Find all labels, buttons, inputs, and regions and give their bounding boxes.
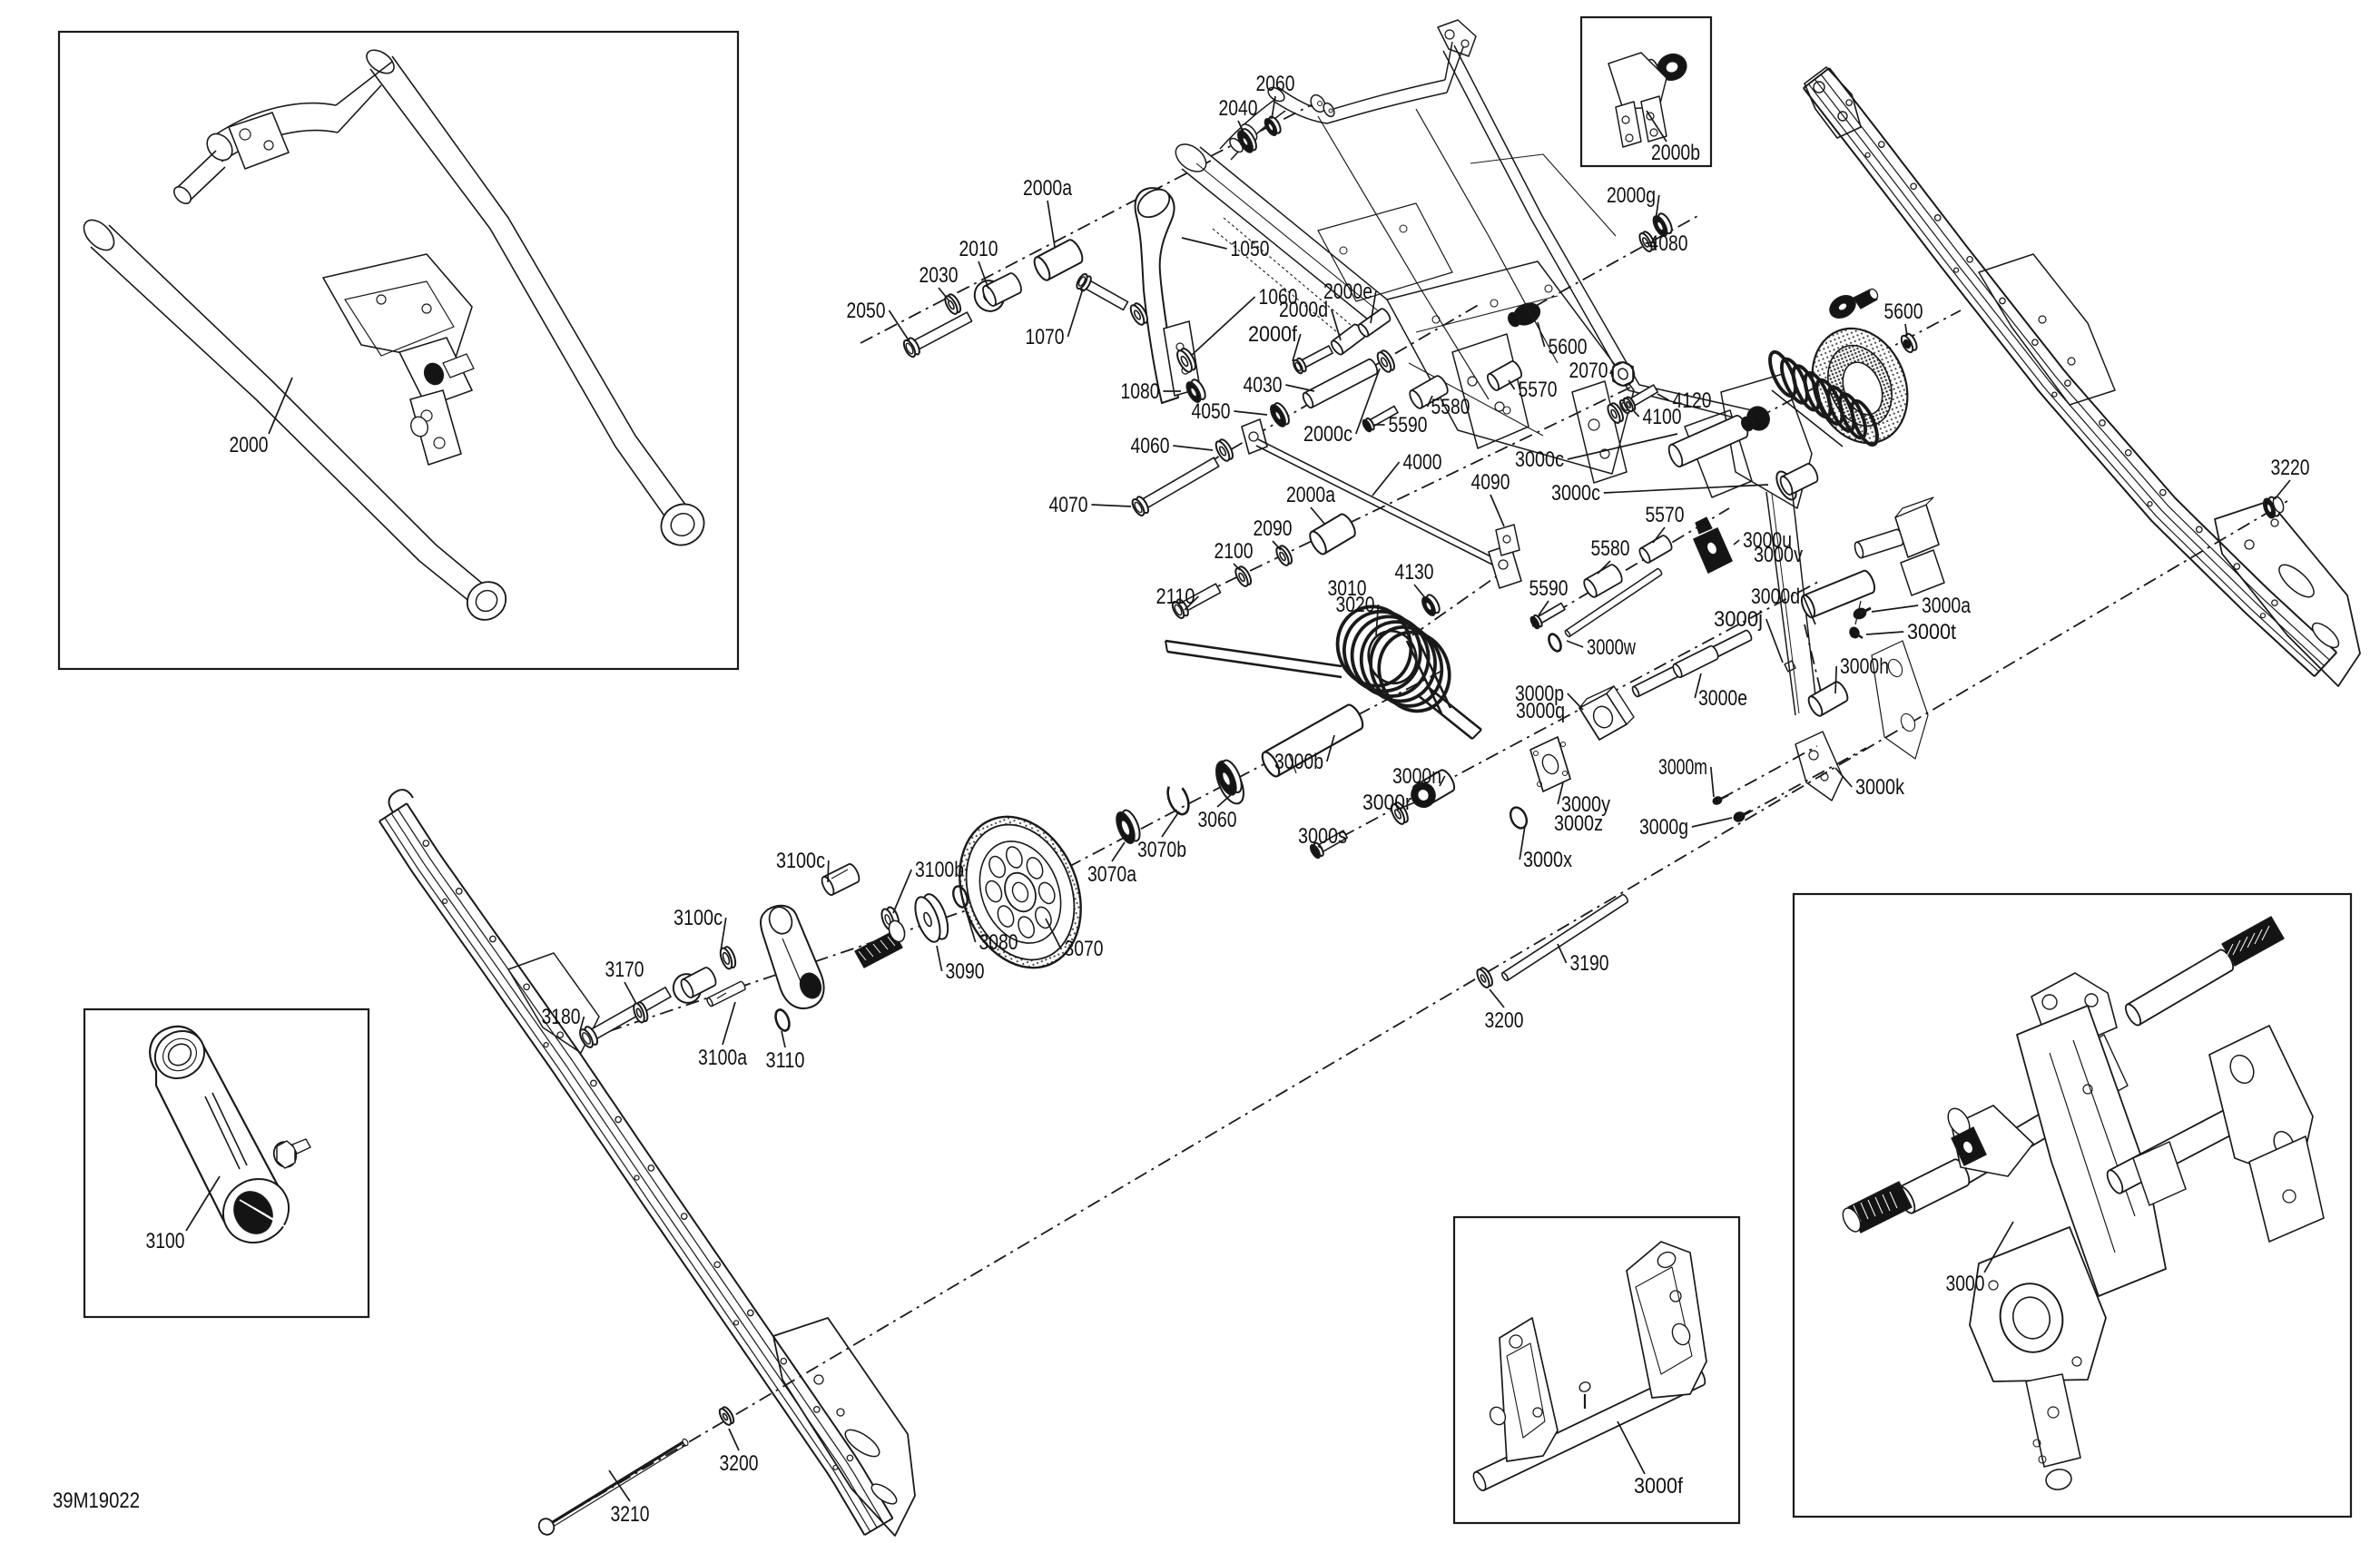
svg-text:3020: 3020 (1336, 593, 1375, 617)
svg-text:5580: 5580 (1431, 395, 1470, 419)
svg-text:5570: 5570 (1519, 378, 1558, 402)
svg-text:4050: 4050 (1192, 399, 1231, 424)
svg-text:1080: 1080 (1121, 379, 1160, 404)
svg-text:3180: 3180 (542, 1005, 581, 1029)
svg-text:3000s: 3000s (1298, 824, 1347, 849)
svg-text:3090: 3090 (946, 959, 985, 984)
svg-text:5590: 5590 (1389, 413, 1428, 437)
svg-text:3000e: 3000e (1698, 686, 1747, 711)
svg-text:2000c: 2000c (1303, 422, 1352, 447)
svg-text:2000a: 2000a (1023, 176, 1072, 201)
svg-text:3070: 3070 (1065, 937, 1104, 961)
svg-text:3000v: 3000v (1754, 543, 1804, 567)
svg-text:3100a: 3100a (698, 1046, 747, 1070)
svg-text:4080: 4080 (1649, 231, 1688, 256)
svg-text:3000h: 3000h (1840, 654, 1889, 679)
svg-text:4100: 4100 (1643, 405, 1682, 429)
svg-text:4070: 4070 (1049, 493, 1088, 517)
svg-text:3000d: 3000d (1751, 585, 1800, 609)
svg-text:3100b: 3100b (915, 858, 964, 882)
svg-text:2100: 2100 (1215, 539, 1254, 564)
svg-text:2060: 2060 (1256, 72, 1295, 96)
svg-text:3000k: 3000k (1855, 775, 1905, 800)
svg-text:2000d: 2000d (1279, 298, 1328, 322)
svg-text:5600: 5600 (1549, 335, 1588, 359)
svg-text:3000m: 3000m (1658, 755, 1707, 780)
svg-text:2050: 2050 (847, 299, 886, 323)
svg-text:3070b: 3070b (1137, 838, 1186, 862)
svg-text:3000g: 3000g (1639, 815, 1688, 840)
svg-text:5570: 5570 (1646, 503, 1685, 527)
svg-text:3080: 3080 (979, 930, 1018, 955)
svg-text:4000: 4000 (1403, 450, 1442, 475)
svg-text:2010: 2010 (959, 237, 998, 261)
svg-text:2000g: 2000g (1607, 183, 1656, 208)
svg-text:2000: 2000 (230, 433, 269, 457)
svg-text:5600: 5600 (1884, 300, 1923, 324)
svg-text:3000r: 3000r (1362, 791, 1411, 815)
svg-text:3000: 3000 (1946, 1272, 1985, 1296)
svg-text:3000q: 3000q (1516, 699, 1565, 723)
svg-text:3000w: 3000w (1587, 635, 1636, 660)
svg-text:3000f: 3000f (1634, 1474, 1683, 1499)
svg-text:3100c: 3100c (776, 849, 825, 873)
svg-text:3000c: 3000c (1551, 481, 1600, 506)
svg-text:3210: 3210 (611, 1502, 650, 1527)
svg-text:3000x: 3000x (1523, 848, 1572, 872)
svg-text:4030: 4030 (1244, 373, 1283, 398)
svg-text:2030: 2030 (920, 263, 959, 288)
svg-text:2000a: 2000a (1286, 483, 1335, 507)
svg-text:3000z: 3000z (1554, 811, 1603, 836)
svg-text:4090: 4090 (1471, 470, 1510, 495)
svg-text:1070: 1070 (1026, 325, 1065, 349)
svg-text:3000b: 3000b (1274, 750, 1323, 774)
svg-text:3000t: 3000t (1907, 620, 1956, 644)
svg-text:3220: 3220 (2271, 456, 2310, 480)
svg-text:4060: 4060 (1131, 434, 1170, 458)
svg-text:2000f: 2000f (1248, 322, 1297, 347)
svg-text:3200: 3200 (1485, 1008, 1524, 1033)
svg-text:5580: 5580 (1591, 536, 1630, 561)
svg-text:3100: 3100 (146, 1229, 185, 1253)
svg-text:4130: 4130 (1395, 560, 1434, 585)
svg-text:2090: 2090 (1254, 516, 1293, 541)
svg-text:5590: 5590 (1529, 576, 1569, 601)
svg-text:3000n: 3000n (1392, 764, 1441, 789)
svg-text:2040: 2040 (1219, 96, 1258, 121)
svg-text:2000b: 2000b (1651, 141, 1700, 165)
svg-text:1050: 1050 (1231, 237, 1270, 261)
svg-text:3100c: 3100c (674, 906, 723, 930)
svg-text:2070: 2070 (1569, 359, 1608, 383)
svg-text:3000j: 3000j (1714, 607, 1763, 632)
svg-text:3200: 3200 (720, 1451, 759, 1476)
svg-text:3070a: 3070a (1087, 862, 1136, 887)
svg-text:3190: 3190 (1570, 951, 1609, 976)
svg-text:3000a: 3000a (1922, 594, 1971, 618)
svg-text:3110: 3110 (766, 1048, 805, 1073)
svg-text:3060: 3060 (1198, 808, 1237, 832)
svg-text:39M19022: 39M19022 (53, 1489, 140, 1513)
svg-text:3170: 3170 (605, 958, 644, 982)
svg-text:2000e: 2000e (1323, 280, 1372, 304)
svg-text:3000c: 3000c (1515, 447, 1564, 472)
